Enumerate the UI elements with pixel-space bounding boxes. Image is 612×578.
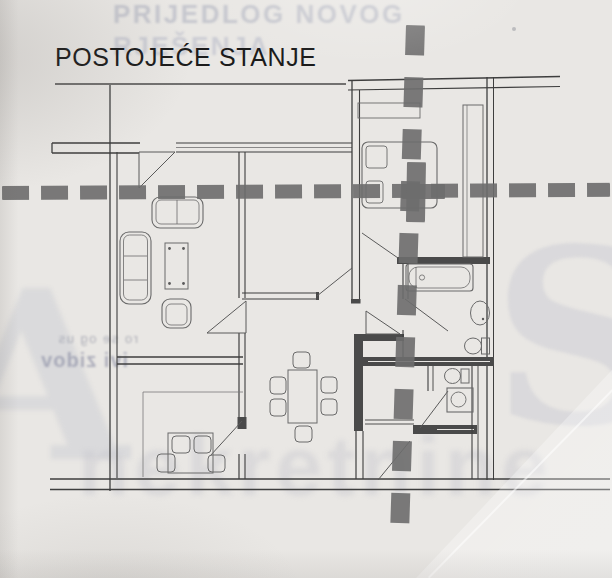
partition-wall-cap xyxy=(238,417,247,429)
coffee-table-dot-1 xyxy=(168,247,171,250)
bathtub-drain xyxy=(419,275,424,280)
corridor-wall xyxy=(354,334,363,431)
coffee-table-dot-3 xyxy=(168,282,171,285)
small-chair-1 xyxy=(172,436,190,453)
door-swing-wc xyxy=(420,391,448,428)
living-door-leaf xyxy=(207,301,246,333)
corridor-wall-stub xyxy=(354,334,404,341)
door-swing-entrance xyxy=(378,441,410,480)
sofa-2seat-inner xyxy=(156,200,199,224)
wc-toilet-tank xyxy=(461,369,469,383)
wardrobe xyxy=(463,105,483,257)
small-chair-4 xyxy=(208,455,225,472)
bedroom-wall-cap xyxy=(351,299,361,304)
coffee-table xyxy=(165,243,188,289)
paper-speck xyxy=(512,27,516,31)
door-swing-dining xyxy=(317,268,352,296)
small-chair-3 xyxy=(157,454,175,472)
small-chair-2 xyxy=(194,436,211,453)
washing-machine-door xyxy=(451,392,466,407)
coffee-table-dot-4 xyxy=(182,282,185,285)
scanned-floor-plan-page: PRIJEDLOG NOVOG RJEŠENJA A S nekretnine … xyxy=(0,0,612,578)
window-shelf xyxy=(358,103,420,118)
toilet-tank xyxy=(482,338,490,354)
sofa-3seat-inner xyxy=(124,235,148,300)
upper-wall-top-inner xyxy=(348,87,560,91)
bed-pillow-1 xyxy=(366,146,387,168)
dining-chair-left-1 xyxy=(270,377,286,394)
dining-table xyxy=(288,370,317,423)
bed-pillow-2 xyxy=(366,181,383,203)
bathtub-inner xyxy=(409,267,470,288)
bath-wall-top xyxy=(397,257,490,264)
floor-plan-svg xyxy=(0,0,612,578)
dining-chair-top xyxy=(293,352,310,368)
dining-chair-right-2 xyxy=(321,399,337,415)
armchair-inner xyxy=(166,304,187,325)
coffee-table-dot-2 xyxy=(182,247,185,250)
bed xyxy=(362,142,437,208)
sofa-2seat xyxy=(152,197,203,228)
door-swing-bedroom xyxy=(362,233,398,258)
hall-door-leaf xyxy=(366,311,400,334)
washbasin-drain xyxy=(482,318,484,320)
wc-toilet-bowl xyxy=(445,369,461,384)
door-swing-small-room xyxy=(210,421,242,456)
dining-chair-bottom xyxy=(295,426,312,442)
upper-wall-top-outer xyxy=(348,77,560,81)
door-swing-bathroom xyxy=(405,299,448,331)
dining-chair-left-2 xyxy=(270,399,286,416)
sofa-3seat xyxy=(120,232,151,304)
balcony-door-leaf xyxy=(139,152,175,188)
drawing-title: POSTOJEĆE STANJE xyxy=(55,43,317,72)
toilet-bowl xyxy=(465,338,482,354)
dining-chair-right-1 xyxy=(321,377,337,393)
